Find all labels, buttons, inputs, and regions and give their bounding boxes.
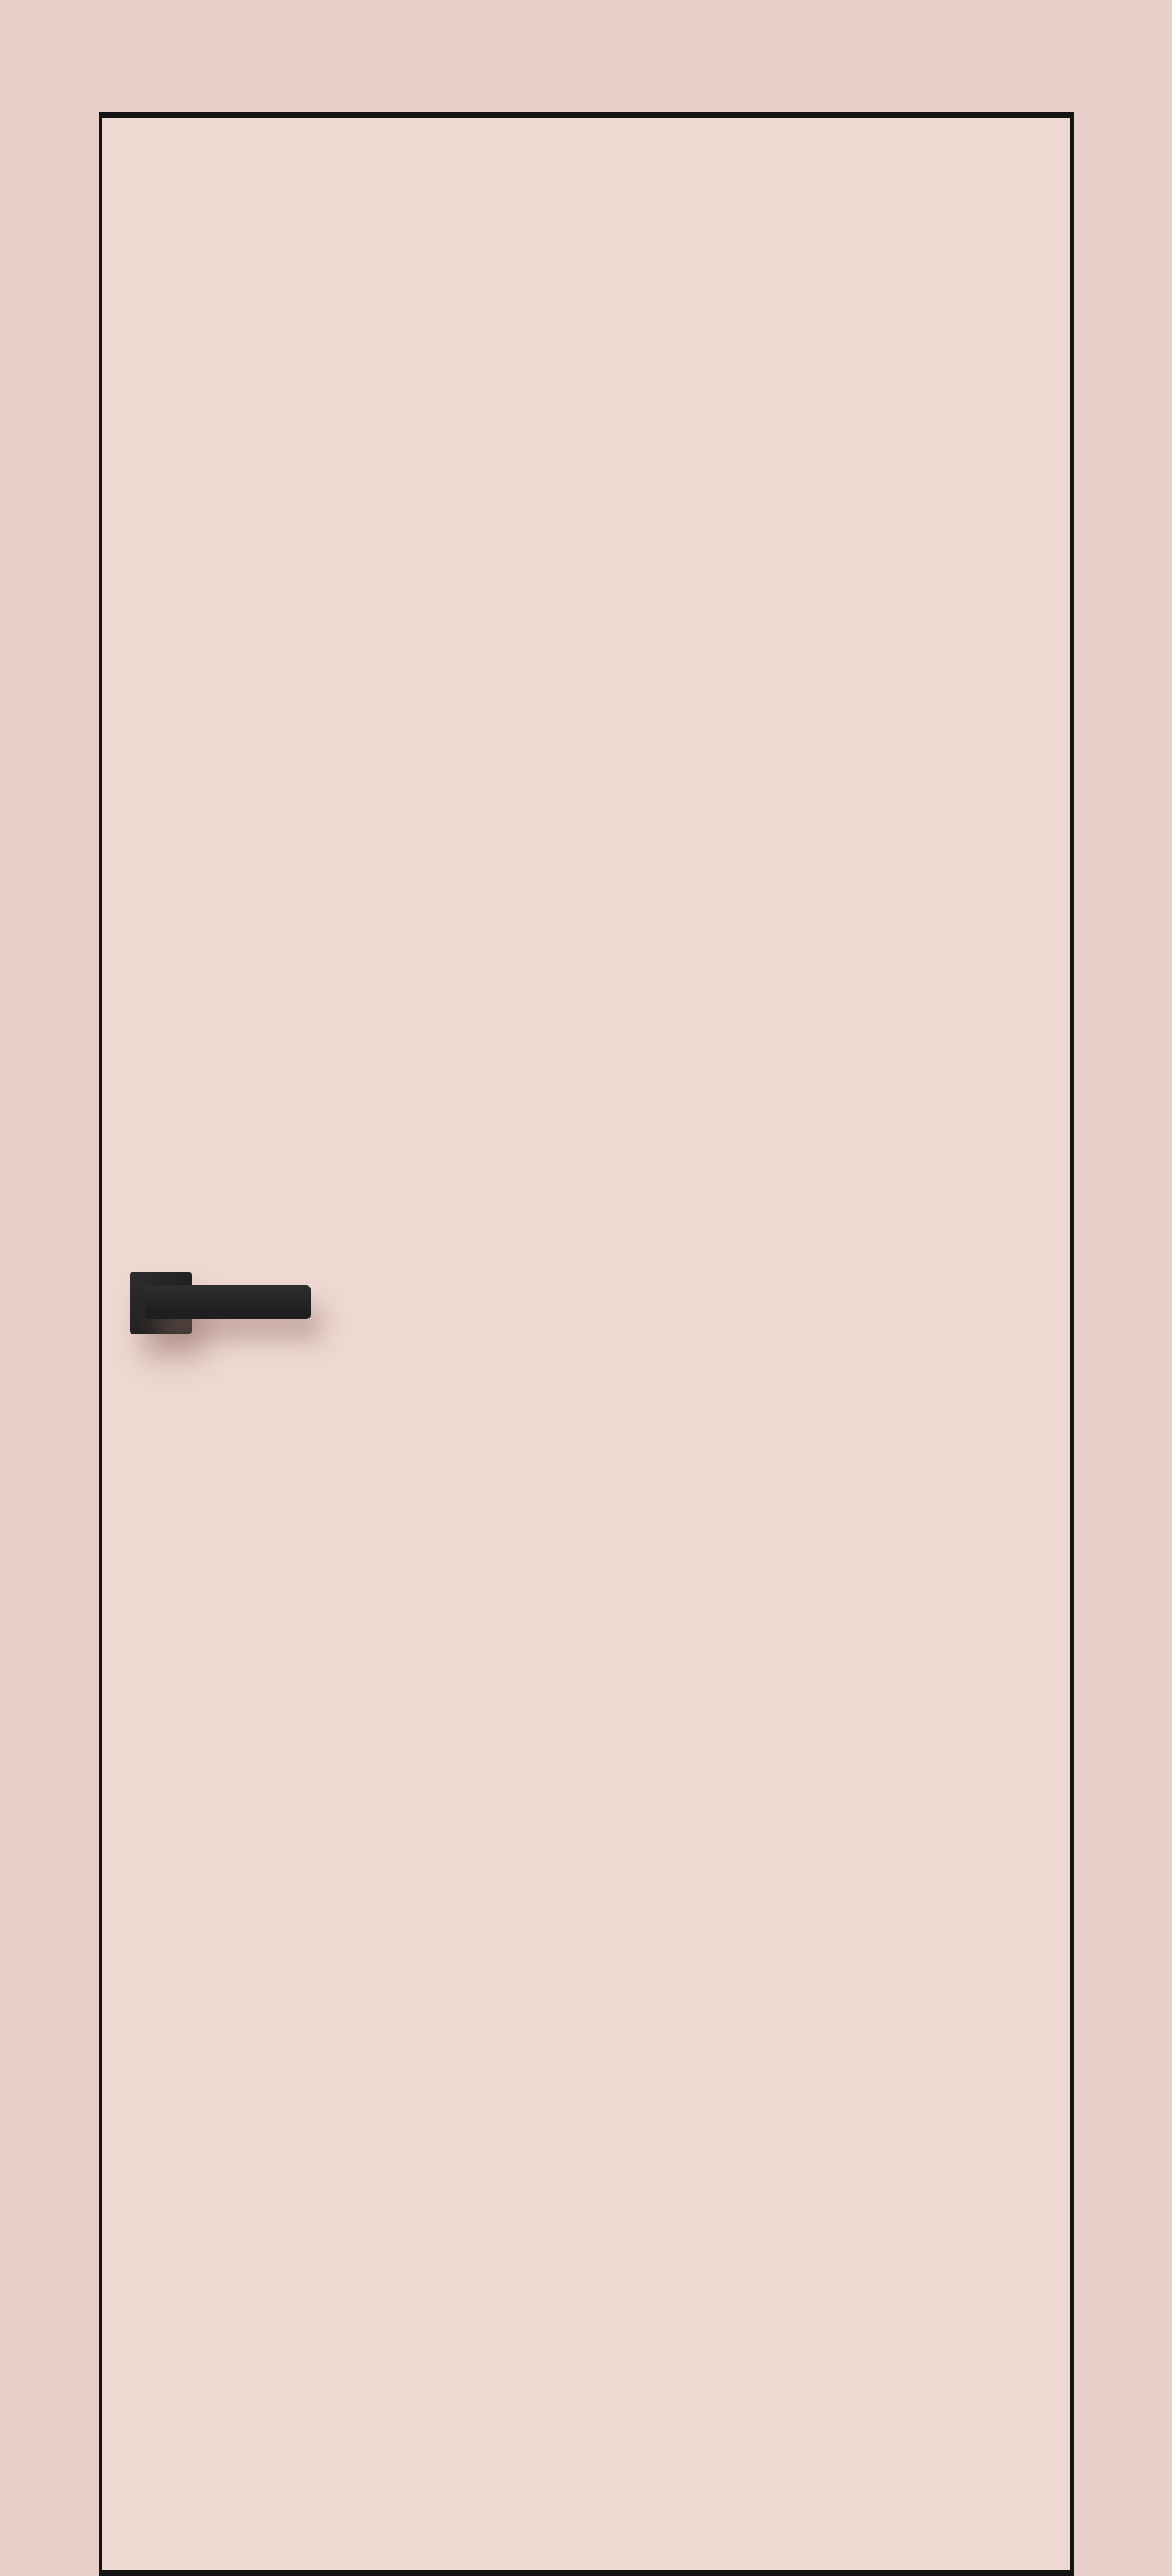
door-handle-lever <box>145 1285 311 1319</box>
wall-background <box>0 0 1172 2576</box>
door-panel <box>99 112 1074 2576</box>
